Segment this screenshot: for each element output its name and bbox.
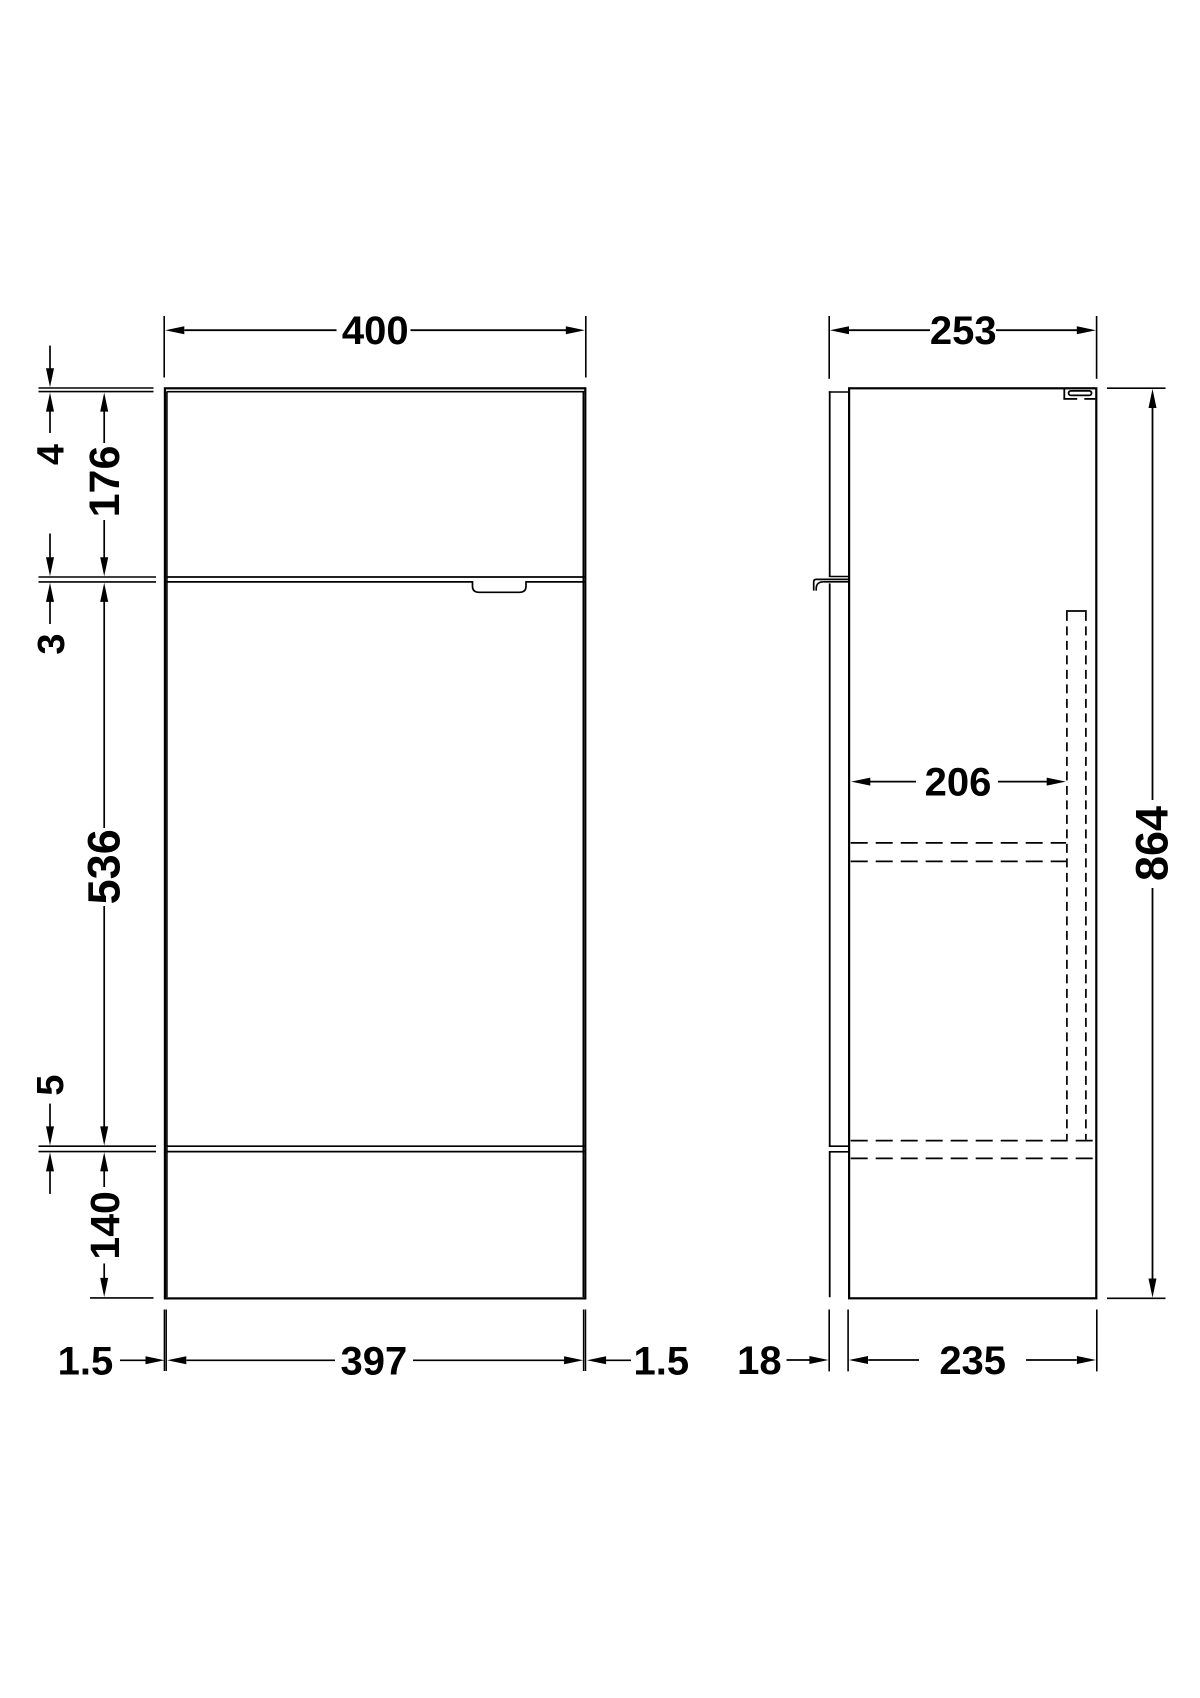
svg-text:1.5: 1.5 (58, 1339, 114, 1383)
svg-text:397: 397 (341, 1339, 408, 1383)
svg-text:235: 235 (939, 1339, 1006, 1383)
svg-text:1.5: 1.5 (633, 1339, 689, 1383)
svg-text:206: 206 (925, 761, 992, 805)
svg-text:3: 3 (31, 633, 73, 654)
svg-text:140: 140 (82, 1191, 128, 1259)
svg-text:176: 176 (81, 446, 129, 518)
svg-text:253: 253 (930, 309, 997, 353)
svg-text:18: 18 (737, 1339, 782, 1383)
svg-text:4: 4 (30, 444, 72, 465)
svg-text:864: 864 (1127, 806, 1178, 881)
svg-text:5: 5 (30, 1075, 72, 1096)
svg-text:536: 536 (79, 829, 130, 904)
svg-text:400: 400 (342, 309, 409, 353)
